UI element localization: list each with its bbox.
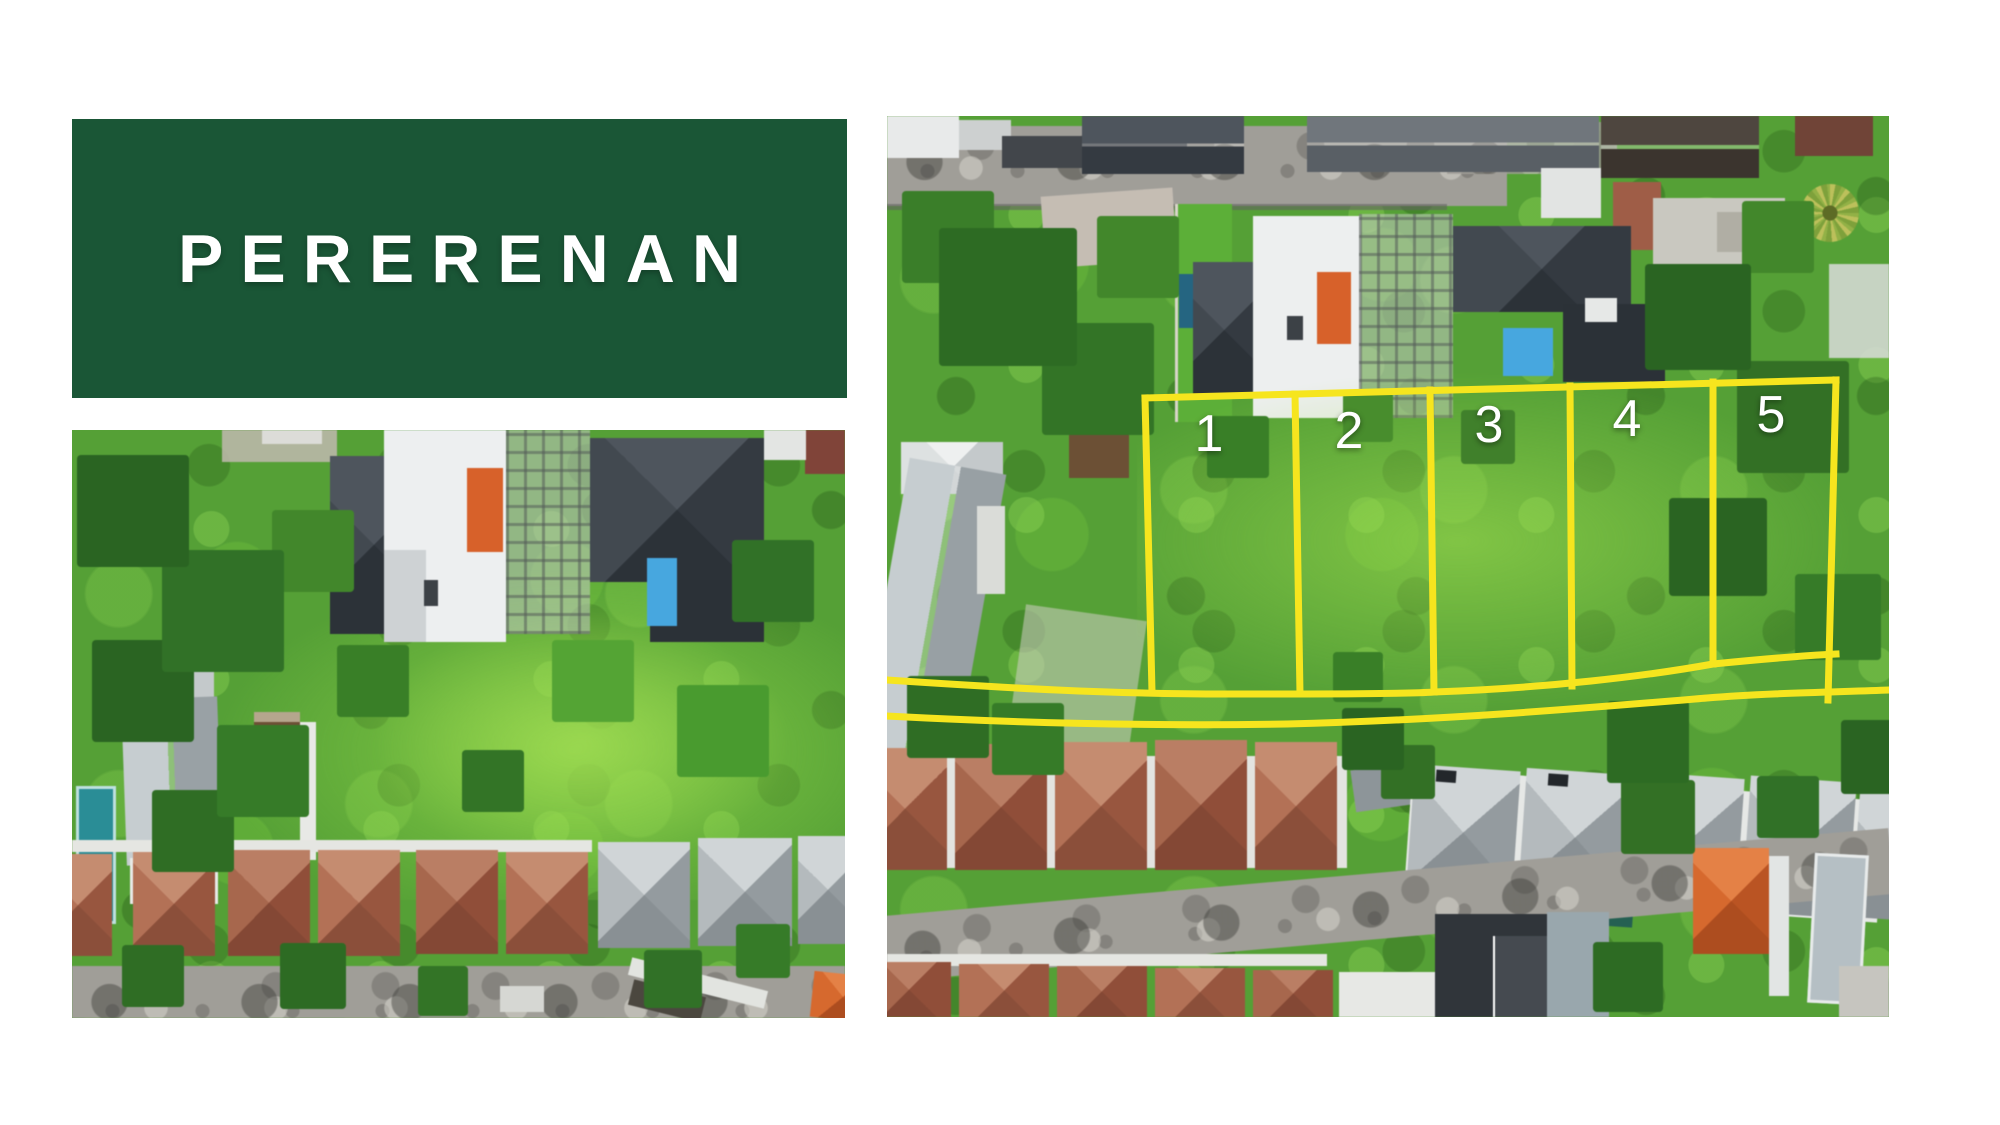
white-roof-corner <box>764 430 806 460</box>
listing-slide: PERERENAN <box>0 0 2000 1125</box>
construction-scaffolding <box>506 430 590 634</box>
villa-roof-gray <box>798 836 845 944</box>
plot-number-5: 5 <box>1757 389 1786 441</box>
plot-grid-overlay <box>887 116 1889 1017</box>
location-title: PERERENAN <box>161 220 758 298</box>
photo-land-plots: 1 2 3 4 5 <box>887 116 1889 1017</box>
orange-roof-corner <box>810 971 845 1018</box>
photo-land-closeup <box>72 430 845 1018</box>
meadow-bright-core <box>372 610 792 870</box>
roof-terrace-patch <box>384 550 426 642</box>
plot-divider-3 <box>1570 386 1572 686</box>
villa-roof <box>506 852 588 954</box>
location-banner: PERERENAN <box>72 119 847 398</box>
garden-shed <box>254 712 300 758</box>
villa-roof <box>318 850 400 956</box>
orange-roof-section <box>467 468 503 552</box>
plot-number-4: 4 <box>1613 393 1642 445</box>
villa-roof <box>133 852 215 956</box>
charcoal-roof-building <box>590 438 764 582</box>
tree-clumps <box>72 430 74 432</box>
plot-left-line <box>1145 398 1152 692</box>
rooftop-window <box>424 580 438 606</box>
plot-bottom-arc <box>887 654 1836 694</box>
villa-roof-gray <box>698 838 792 946</box>
wall-sliver <box>262 430 322 444</box>
plot-divider-2 <box>1430 390 1434 692</box>
photo-left-scene <box>72 430 845 1018</box>
path-structure <box>500 986 544 1012</box>
villa-roof-gray <box>598 842 690 948</box>
maroon-roof-corner <box>805 430 845 474</box>
villa-roof <box>228 850 310 956</box>
villa-roof <box>72 854 112 956</box>
plot-number-1: 1 <box>1195 408 1224 460</box>
plot-divider-1 <box>1295 394 1300 694</box>
blue-tarp <box>647 558 677 626</box>
plot-number-3: 3 <box>1475 399 1504 451</box>
villa-roof <box>416 850 498 954</box>
plot-number-2: 2 <box>1335 405 1364 457</box>
